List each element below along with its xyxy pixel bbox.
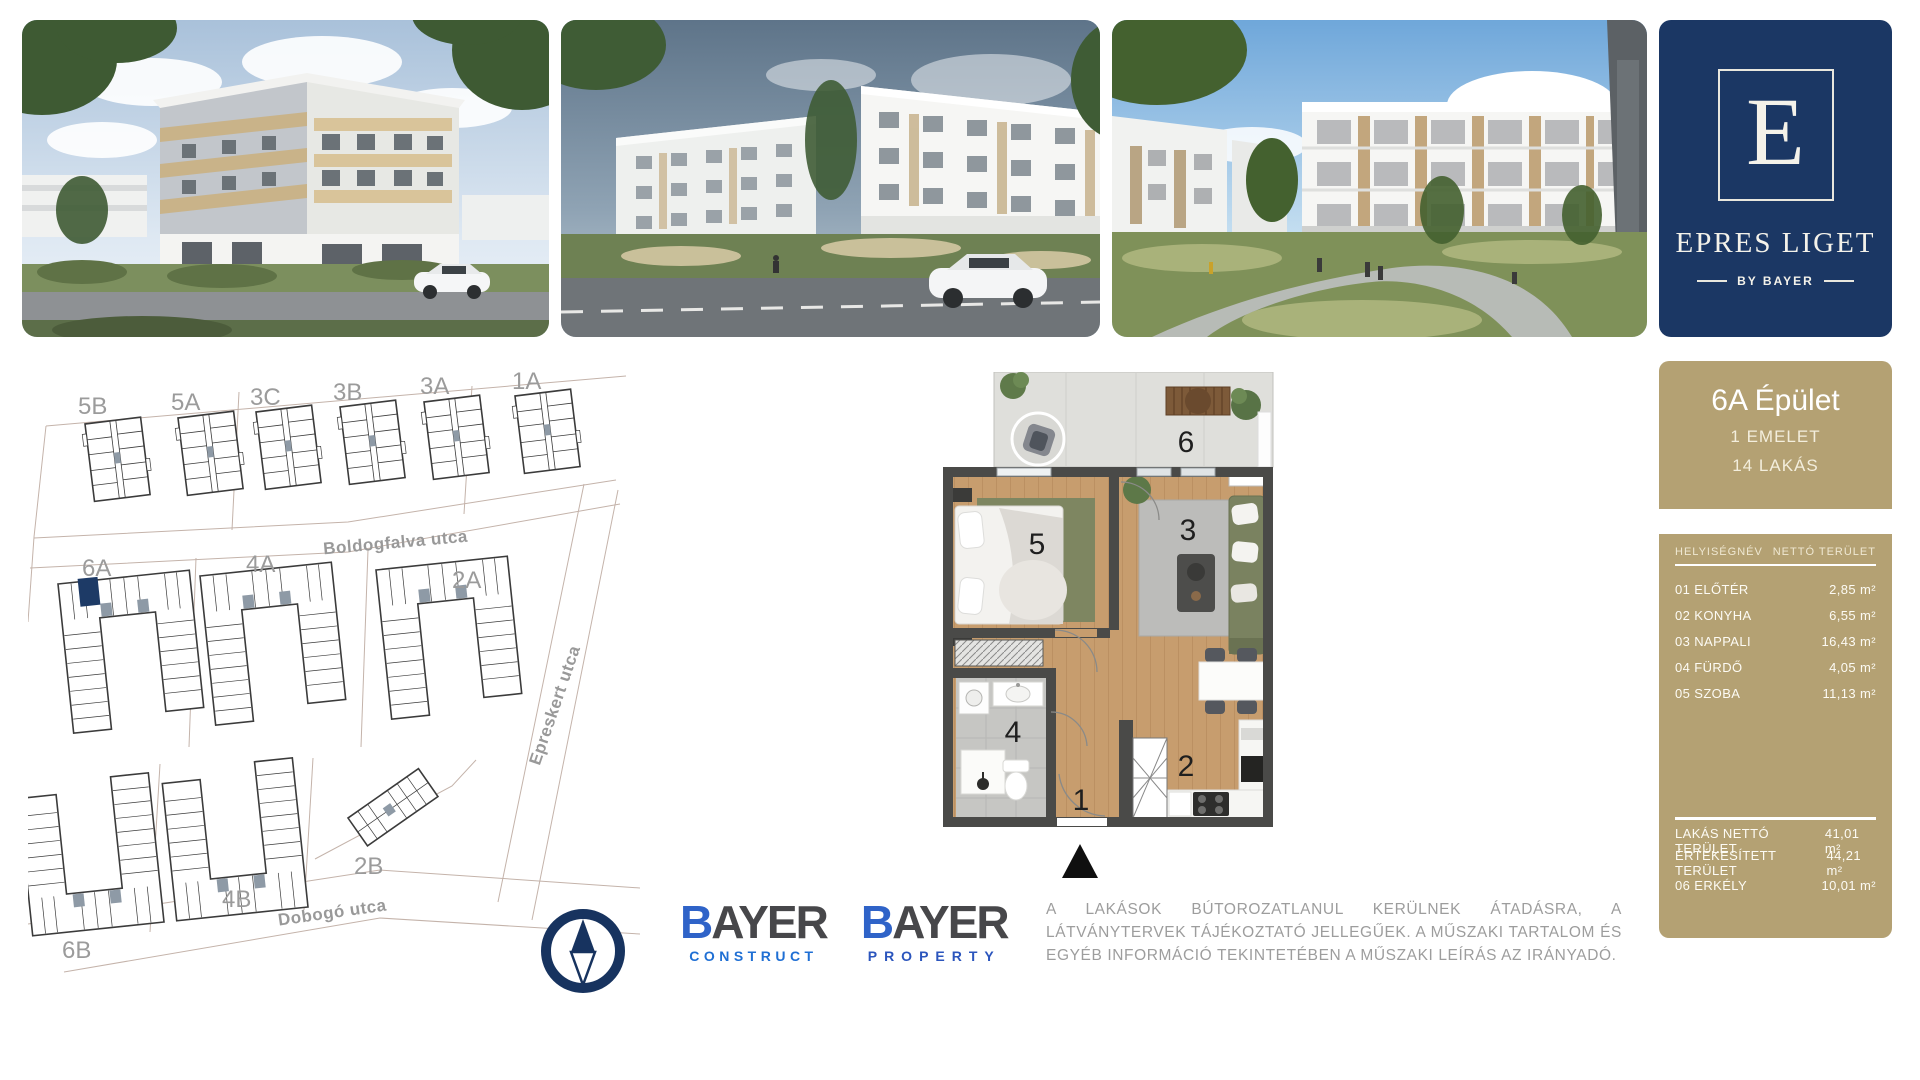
- map-label-2A: 2A: [452, 567, 481, 594]
- room-area: 4,05 m²: [1829, 660, 1876, 675]
- map-label-2B: 2B: [354, 853, 383, 880]
- partner-logos: BAYER CONSTRUCT BAYER PROPERTY: [680, 901, 1008, 964]
- bayer-construct-logo: BAYER CONSTRUCT: [680, 901, 827, 964]
- bayer-property-logo: BAYER PROPERTY: [861, 901, 1008, 964]
- map-label-6B: 6B: [62, 937, 91, 964]
- photo-illustration-2: [561, 20, 1100, 337]
- bench-icon: [1166, 387, 1230, 415]
- room-number-4: 4: [1005, 716, 1022, 749]
- map-building-1A: [511, 389, 584, 474]
- photo-illustration-1: [22, 20, 549, 337]
- floor-plan: 5 3 6 4 1 2: [941, 372, 1281, 882]
- map-building-2A: [376, 556, 523, 719]
- bathroom-area: [956, 678, 1046, 818]
- compass-icon: [537, 905, 629, 997]
- summary-rule: [1675, 817, 1876, 820]
- logo-b: B: [680, 896, 711, 948]
- building-title: 6A Épület: [1659, 384, 1892, 418]
- oven-icon: [1241, 756, 1263, 782]
- room-number-1: 1: [1073, 784, 1090, 817]
- summary-area: 10,01 m²: [1821, 878, 1876, 893]
- map-label-4B: 4B: [222, 886, 251, 913]
- room-number-5: 5: [1029, 528, 1046, 561]
- map-building-5B: [81, 417, 154, 502]
- logo-b: B: [861, 896, 892, 948]
- summary-row: ÉRTÉKESÍTETT TERÜLET 44,21 m²: [1675, 852, 1876, 874]
- floor-subtitle: 1 EMELET: [1659, 427, 1892, 447]
- panel-divider-gap: [1659, 509, 1892, 534]
- bayer-wordmark: BAYER: [861, 901, 1008, 945]
- living-area: [1123, 476, 1265, 654]
- sofa-icon: [1229, 496, 1265, 654]
- map-building-2B: [348, 769, 438, 846]
- map-building-6B: [28, 773, 164, 936]
- bayer-wordmark: BAYER: [680, 901, 827, 945]
- privacy-screen: [1258, 412, 1271, 467]
- map-building-3B: [336, 400, 409, 485]
- summary-name: 06 ERKÉLY: [1675, 878, 1747, 893]
- table-row: 04 FÜRDŐ 4,05 m²: [1675, 654, 1876, 680]
- radiator-icon: [1229, 476, 1265, 486]
- render-photo-street-corner: [22, 20, 549, 337]
- brand-monogram: E: [1746, 84, 1805, 180]
- summary-name: ÉRTÉKESÍTETT TERÜLET: [1675, 848, 1827, 878]
- room-area: 11,13 m²: [1822, 686, 1876, 701]
- brand-monogram-frame: E: [1718, 69, 1834, 201]
- map-label-1A: 1A: [512, 368, 541, 395]
- map-label-3B: 3B: [333, 379, 362, 406]
- logo-rest: AYER: [711, 896, 827, 948]
- photo-illustration-3: [1112, 20, 1647, 337]
- map-label-6A: 6A: [82, 555, 111, 582]
- room-number-2: 2: [1178, 750, 1195, 783]
- dining-table-icon: [1199, 662, 1265, 700]
- room-name: 04 FÜRDŐ: [1675, 660, 1743, 675]
- col-net-area: NETTÓ TERÜLET: [1773, 546, 1876, 558]
- map-building-4A: [200, 562, 347, 725]
- street-label-boldogfalva: Boldogfalva utca: [322, 527, 468, 559]
- construct-label: CONSTRUCT: [689, 948, 817, 964]
- summary-area: 44,21 m²: [1827, 848, 1876, 878]
- map-building-5A: [174, 411, 247, 496]
- brand-name: EPRES LIGET: [1675, 227, 1875, 260]
- byline-dash-left: [1697, 280, 1727, 282]
- logo-rest: AYER: [892, 896, 1008, 948]
- site-map: 5B 5A 3C 3B 3A 1A 6A 4A 2A 2B 4B 6B Bold…: [28, 362, 640, 982]
- bed-icon: [955, 506, 1067, 624]
- map-building-3A: [420, 395, 493, 480]
- brand-byline: BY BAYER: [1737, 274, 1814, 288]
- room-name: 02 KONYHA: [1675, 608, 1752, 623]
- byline-dash-right: [1824, 280, 1854, 282]
- stove-icon: [1193, 792, 1229, 816]
- balcony-area: [994, 372, 1273, 467]
- room-name: 01 ELŐTÉR: [1675, 582, 1749, 597]
- building-illustration: [153, 73, 465, 272]
- summary-rows: LAKÁS NETTÓ TERÜLET 41,01 m² ÉRTÉKESÍTET…: [1675, 830, 1876, 896]
- map-label-5A: 5A: [171, 389, 200, 416]
- map-label-5B: 5B: [78, 393, 107, 420]
- property-label: PROPERTY: [868, 948, 1001, 964]
- room-area: 2,85 m²: [1829, 582, 1876, 597]
- room-number-6: 6: [1178, 426, 1195, 459]
- units-subtitle: 14 LAKÁS: [1659, 456, 1892, 476]
- panel-header: 6A Épület 1 EMELET 14 LAKÁS: [1659, 361, 1892, 509]
- room-name: 05 SZOBA: [1675, 686, 1740, 701]
- map-building-3C: [252, 405, 325, 490]
- col-room-name: HELYISÉGNÉV: [1675, 546, 1763, 558]
- table-header: HELYISÉGNÉV NETTÓ TERÜLET: [1675, 534, 1876, 558]
- table-row: 01 ELŐTÉR 2,85 m²: [1675, 576, 1876, 602]
- room-rows: 01 ELŐTÉR 2,85 m² 02 KONYHA 6,55 m² 03 N…: [1675, 576, 1876, 706]
- room-area: 16,43 m²: [1821, 634, 1876, 649]
- disclaimer-text: A LAKÁSOK BÚTOROZATLANUL KERÜLNEK ÁTADÁS…: [1046, 898, 1622, 967]
- map-label-3A: 3A: [420, 373, 449, 400]
- room-number-3: 3: [1180, 514, 1197, 547]
- map-label-3C: 3C: [250, 384, 281, 411]
- wardrobe-icon: [955, 640, 1043, 666]
- table-row: 02 KONYHA 6,55 m²: [1675, 602, 1876, 628]
- coffee-table-icon: [1177, 554, 1215, 612]
- room-name: 03 NAPPALI: [1675, 634, 1751, 649]
- brand-card: E EPRES LIGET BY BAYER: [1659, 20, 1892, 337]
- hanging-chair-icon: [1012, 413, 1064, 465]
- brand-byline-row: BY BAYER: [1697, 274, 1854, 288]
- render-photo-street-view: [561, 20, 1100, 337]
- panel-body: HELYISÉGNÉV NETTÓ TERÜLET 01 ELŐTÉR 2,85…: [1659, 534, 1892, 938]
- room-area: 6,55 m²: [1829, 608, 1876, 623]
- table-row: 03 NAPPALI 16,43 m²: [1675, 628, 1876, 654]
- entrance-arrow-icon: [1062, 844, 1098, 878]
- map-building-6A: [58, 567, 205, 733]
- map-label-4A: 4A: [246, 551, 275, 578]
- toilet-icon: [1003, 760, 1029, 800]
- table-row: 05 SZOBA 11,13 m²: [1675, 680, 1876, 706]
- unit-info-panel: 6A Épület 1 EMELET 14 LAKÁS HELYISÉGNÉV …: [1659, 361, 1892, 938]
- plant-icon: [1123, 476, 1151, 504]
- table-header-rule: [1675, 564, 1876, 566]
- render-photo-courtyard: [1112, 20, 1647, 337]
